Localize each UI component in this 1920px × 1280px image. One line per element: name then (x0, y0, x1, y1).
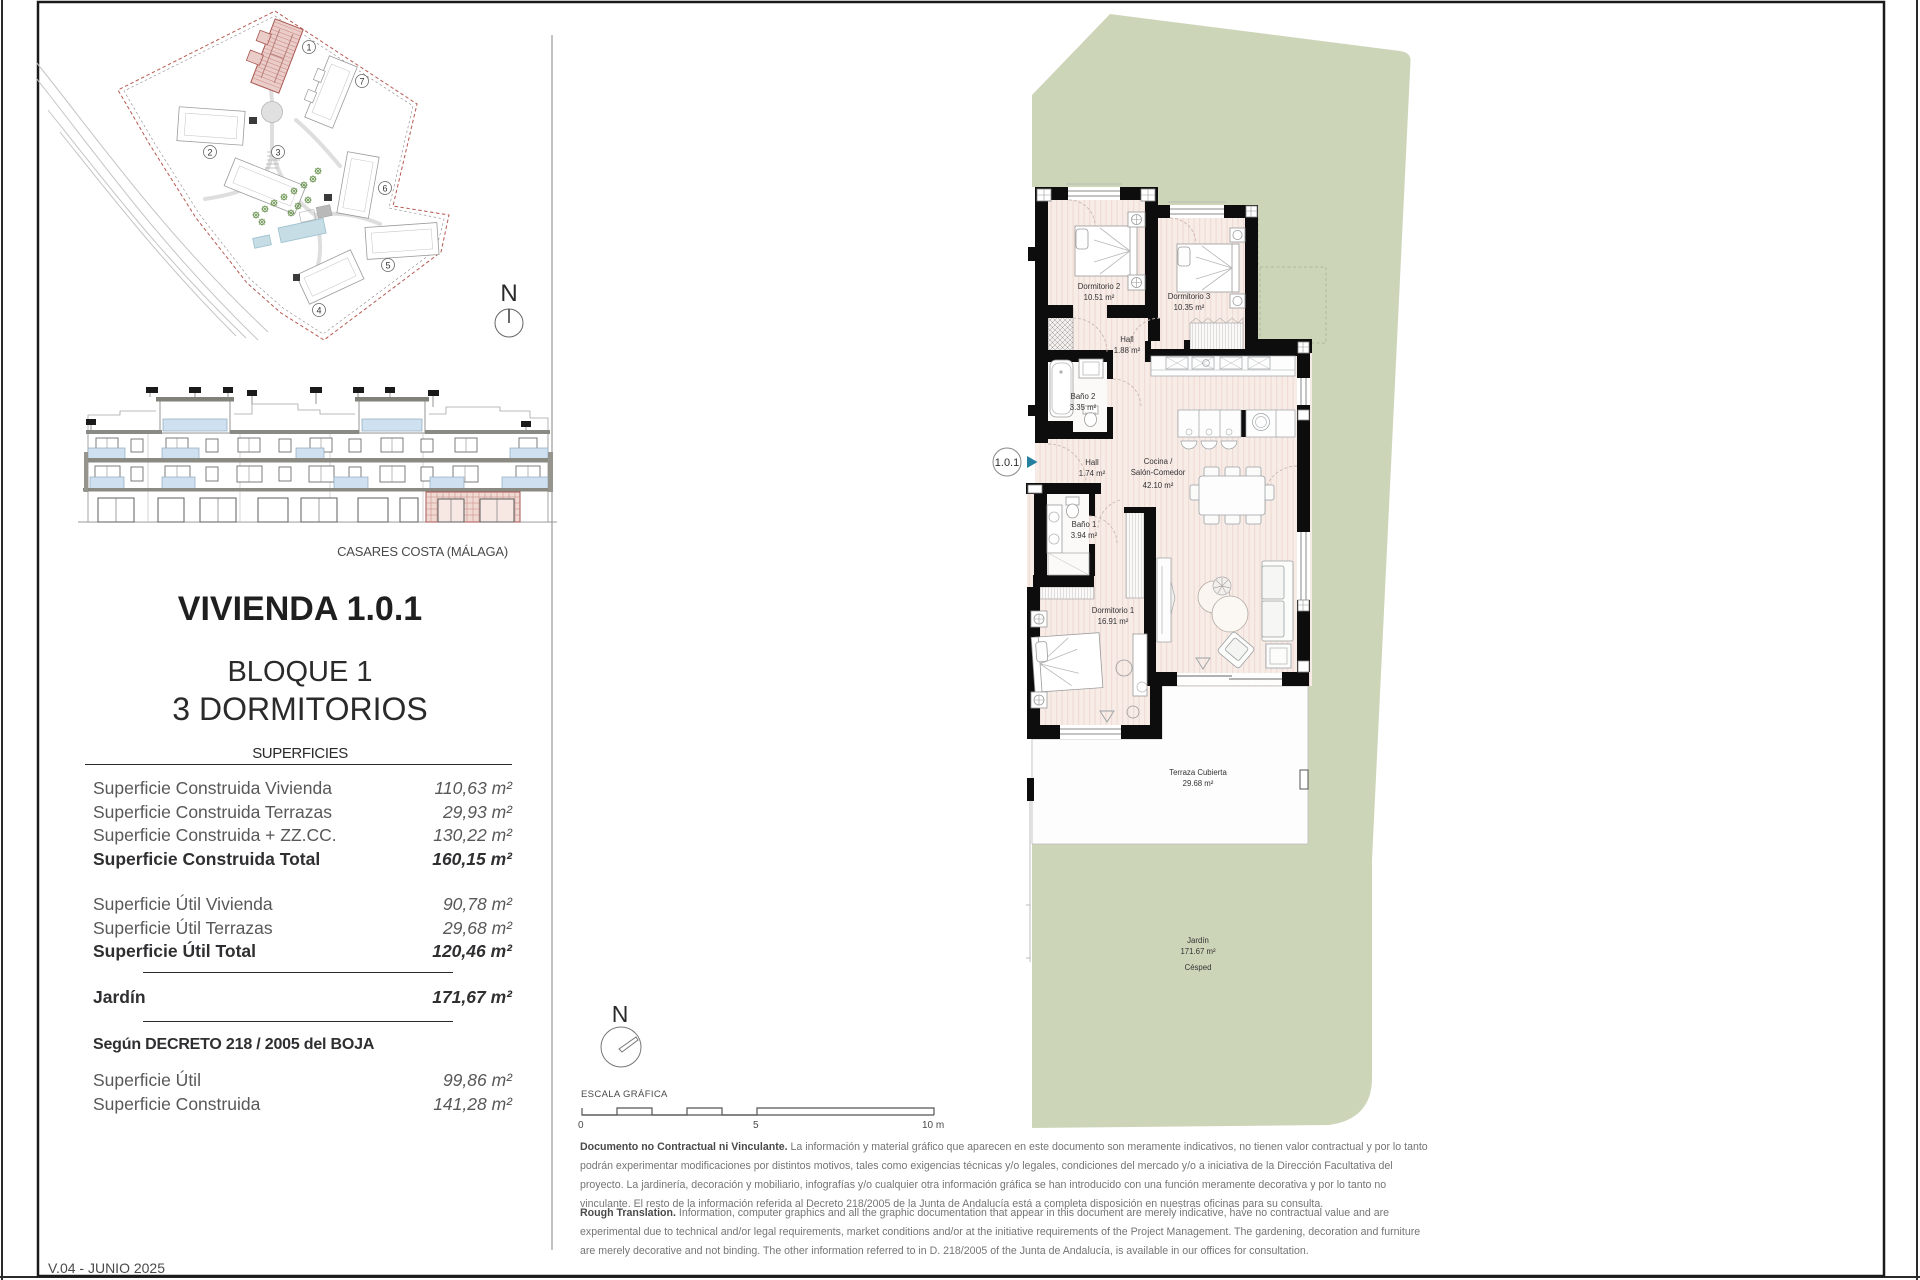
svg-text:Hall: Hall (1120, 335, 1134, 344)
svg-text:5: 5 (753, 1120, 759, 1131)
svg-text:Salón-Comedor: Salón-Comedor (1131, 468, 1186, 477)
svg-text:16.91 m²: 16.91 m² (1098, 617, 1129, 626)
svg-text:0: 0 (578, 1120, 584, 1131)
svg-text:Césped: Césped (1185, 963, 1212, 972)
svg-text:Hall: Hall (1085, 458, 1099, 467)
svg-text:ESCALA GRÁFICA: ESCALA GRÁFICA (581, 1089, 668, 1100)
svg-text:N: N (500, 280, 517, 307)
svg-text:Terraza Cubierta: Terraza Cubierta (1169, 768, 1227, 777)
svg-text:2: 2 (207, 148, 212, 158)
svg-text:10.51 m²: 10.51 m² (1084, 293, 1115, 302)
svg-text:5: 5 (385, 261, 390, 271)
svg-text:42.10 m²: 42.10 m² (1143, 481, 1174, 490)
svg-text:Dormitorio 1: Dormitorio 1 (1092, 606, 1134, 615)
svg-text:1.0.1: 1.0.1 (995, 457, 1019, 469)
svg-text:171.67 m²: 171.67 m² (1180, 947, 1216, 956)
svg-text:29.68 m²: 29.68 m² (1183, 779, 1214, 788)
svg-text:3: 3 (275, 148, 280, 158)
svg-text:Jardín: Jardín (1187, 936, 1209, 945)
svg-text:6: 6 (382, 184, 387, 194)
svg-text:Dormitorio 2: Dormitorio 2 (1078, 282, 1120, 291)
svg-text:1: 1 (306, 43, 311, 53)
svg-text:3.35 m²: 3.35 m² (1070, 403, 1097, 412)
svg-text:10.35 m²: 10.35 m² (1174, 303, 1205, 312)
svg-text:N: N (612, 1001, 629, 1027)
svg-text:Dormitorio 3: Dormitorio 3 (1168, 292, 1210, 301)
svg-text:1.88 m²: 1.88 m² (1114, 346, 1141, 355)
svg-text:1.74 m²: 1.74 m² (1079, 469, 1106, 478)
svg-text:Cocina /: Cocina / (1144, 457, 1173, 466)
svg-text:Baño 2: Baño 2 (1071, 392, 1096, 401)
svg-text:10 m: 10 m (922, 1120, 944, 1131)
svg-text:Baño 1: Baño 1 (1072, 520, 1097, 529)
svg-text:3.94 m²: 3.94 m² (1071, 531, 1098, 540)
svg-text:4: 4 (316, 306, 321, 316)
svg-text:7: 7 (359, 77, 364, 87)
